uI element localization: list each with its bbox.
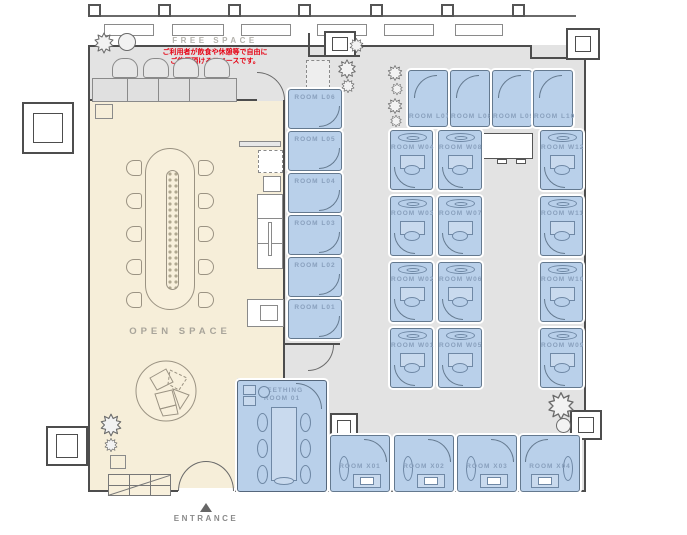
sofa-cushion (556, 334, 569, 338)
door-arc-icon (319, 316, 340, 337)
column-icon (228, 4, 241, 17)
sofa-cushion (406, 334, 419, 338)
column-icon (88, 4, 101, 17)
chair-icon (126, 160, 142, 176)
room-label: ROOM W05 (439, 342, 481, 349)
room-w11: ROOM W11 (540, 196, 583, 256)
stool-icon (173, 58, 199, 78)
chair-icon (198, 259, 214, 275)
counter-divider (257, 218, 283, 219)
plant-icon (389, 114, 403, 128)
window-pane (455, 24, 503, 36)
column-inner (575, 36, 591, 52)
room-w03: ROOM W03 (390, 196, 433, 256)
open-space-label: OPEN SPACE (120, 326, 240, 337)
room-l06: ROOM L06 (288, 89, 342, 129)
chair-icon (126, 292, 142, 308)
door-arc-icon (442, 365, 463, 386)
meeting-room-01: MEETHING ROOM 01 (237, 380, 327, 492)
monitor-icon (487, 477, 501, 485)
sofa-icon (548, 265, 577, 274)
room-l03: ROOM L03 (288, 215, 342, 255)
counter-divider (189, 78, 190, 102)
sofa-cushion (406, 268, 419, 272)
sofa-cushion (556, 136, 569, 140)
plant-icon (336, 58, 358, 80)
room-w07: ROOM W07 (438, 196, 482, 256)
entrance-arrow-icon (200, 503, 212, 512)
column-icon (370, 4, 383, 17)
column-inner (56, 434, 78, 458)
monitor-icon (424, 477, 438, 485)
sofa-icon (398, 133, 427, 142)
room-l05: ROOM L05 (288, 131, 342, 171)
chair-icon (126, 259, 142, 275)
cabinet (243, 385, 256, 395)
plant-icon (390, 82, 404, 96)
chair-icon (257, 413, 268, 432)
chair-icon (198, 226, 214, 242)
door-arc-icon (544, 365, 565, 386)
sink-handle (268, 222, 272, 256)
sofa-icon (398, 199, 427, 208)
room-label: ROOM W06 (439, 276, 481, 283)
planter-box (110, 455, 126, 469)
chair-icon (126, 226, 142, 242)
room-label: ROOM L08 (451, 113, 489, 120)
room-label: ROOM L07 (409, 113, 447, 120)
room-w05: ROOM W05 (438, 328, 482, 388)
appliance-dashed (258, 150, 283, 173)
room-label: ROOM W07 (439, 210, 481, 217)
window-pane (241, 24, 291, 36)
room-w04: ROOM W04 (390, 130, 433, 190)
room-label: ROOM L10 (534, 113, 572, 120)
alcove-tab (497, 159, 507, 164)
plant-pot-icon (556, 418, 571, 433)
door-arc-icon (498, 75, 521, 98)
sofa-icon (398, 331, 427, 340)
room-label: ROOM W10 (541, 276, 582, 283)
sofa-cushion (556, 202, 569, 206)
sofa-cushion (556, 268, 569, 272)
stool-icon (204, 58, 230, 78)
door-arc-icon (319, 232, 340, 253)
appliance (263, 176, 281, 192)
wall (308, 33, 310, 57)
room-label: ROOM W03 (391, 210, 432, 217)
room-l07: ROOM L07 (408, 70, 448, 127)
sofa-cushion (454, 136, 467, 140)
room-x03: ROOM X03 (457, 435, 517, 492)
door-arc-icon (319, 274, 340, 295)
door-arc-icon (491, 439, 514, 462)
appliance-dashed (306, 60, 330, 88)
monitor-icon (360, 477, 374, 485)
plant-icon (386, 64, 404, 82)
door-arc-icon (442, 299, 463, 320)
stool-icon (143, 58, 169, 78)
chair-icon (198, 160, 214, 176)
door-arc-icon (428, 439, 451, 462)
sofa-icon (446, 199, 475, 208)
sofa-cushion (454, 202, 467, 206)
room-x01: ROOM X01 (330, 435, 390, 492)
door-arc-icon (539, 75, 562, 98)
counter-divider (127, 78, 128, 102)
room-label: ROOM L06 (289, 94, 341, 101)
wall (88, 45, 532, 47)
room-w12: ROOM W12 (540, 130, 583, 190)
room-l08: ROOM L08 (450, 70, 490, 127)
free-space-label: FREE SPACE (150, 36, 280, 45)
column-inner (33, 113, 63, 143)
room-label: ROOM X02 (395, 463, 453, 470)
copier (260, 305, 278, 321)
room-label: ROOM W08 (439, 144, 481, 151)
table-planter (166, 170, 179, 290)
plant-icon (92, 31, 116, 55)
counter-divider (158, 78, 159, 102)
cabinet (243, 396, 256, 406)
door-arc-icon (394, 233, 415, 254)
sofa-icon (398, 265, 427, 274)
wall-stub (239, 141, 281, 147)
alcove (483, 133, 533, 159)
room-label: ROOM X04 (521, 463, 579, 470)
door-arc-icon (544, 167, 565, 188)
window-pane (172, 24, 224, 36)
stool-icon (112, 58, 138, 78)
plant-icon (98, 412, 124, 438)
plant-icon (118, 33, 136, 51)
door-arc-icon (442, 233, 463, 254)
counter (92, 78, 237, 102)
column-inner (578, 417, 594, 433)
chair-icon (300, 413, 311, 432)
room-label: ROOM X01 (331, 463, 389, 470)
alcove-tab (516, 159, 526, 164)
sofa-icon (548, 133, 577, 142)
room-label: ROOM W04 (391, 144, 432, 151)
sofa-cushion (406, 202, 419, 206)
plant-icon (348, 37, 365, 54)
plant-icon (103, 437, 119, 453)
door-arc-icon (456, 75, 479, 98)
room-label: ROOM L04 (289, 178, 341, 185)
sofa-cushion (406, 136, 419, 140)
column-icon (512, 4, 525, 17)
sofa-icon (446, 265, 475, 274)
room-label: ROOM L05 (289, 136, 341, 143)
room-label: ROOM W09 (541, 342, 582, 349)
sofa-icon (548, 199, 577, 208)
room-w06: ROOM W06 (438, 262, 482, 322)
sofa-cushion (454, 334, 467, 338)
column-icon (158, 4, 171, 17)
speakerphone-icon (274, 477, 294, 485)
door-arc-icon (442, 167, 463, 188)
room-label: ROOM L03 (289, 220, 341, 227)
door-arc-icon (394, 299, 415, 320)
room-l10: ROOM L10 (533, 70, 573, 127)
floor-plan: FREE SPACE ご利用者が飲食や休憩等で自由に ご使用頂けるスペースです。… (0, 0, 687, 535)
planter-box (95, 104, 113, 119)
chair-icon (126, 193, 142, 209)
window-pane (384, 24, 434, 36)
monitor-icon (538, 477, 552, 485)
room-w08: ROOM W08 (438, 130, 482, 190)
entrance-label: ENTRANCE (146, 514, 266, 523)
wall (283, 100, 285, 378)
room-x04: ROOM X04 (520, 435, 580, 492)
chair-icon (257, 465, 268, 484)
meeting-table (271, 407, 297, 481)
column-icon (298, 4, 311, 17)
plant-icon (386, 97, 404, 115)
lounge-seating (135, 356, 199, 428)
free-space-note-1: ご利用者が飲食や休憩等で自由に (145, 48, 285, 57)
wall (88, 45, 90, 492)
room-label: ROOM W02 (391, 276, 432, 283)
chair-icon (258, 386, 270, 398)
sofa-icon (446, 331, 475, 340)
room-w01: ROOM W01 (390, 328, 433, 388)
plant-icon (340, 78, 356, 94)
door-arc-icon (364, 439, 387, 462)
door-arc-icon (394, 365, 415, 386)
sofa-icon (446, 133, 475, 142)
room-l04: ROOM L04 (288, 173, 342, 213)
door-arc-icon (319, 190, 340, 211)
door-arc-icon (544, 233, 565, 254)
room-label: ROOM W11 (541, 210, 582, 217)
room-w10: ROOM W10 (540, 262, 583, 322)
room-l02: ROOM L02 (288, 257, 342, 297)
column-inner (332, 37, 348, 51)
room-label: ROOM L01 (289, 304, 341, 311)
column-icon (441, 4, 454, 17)
door-arc-icon (544, 299, 565, 320)
room-label: ROOM X03 (458, 463, 516, 470)
door-arc-icon (414, 75, 437, 98)
sofa-icon (548, 331, 577, 340)
room-l09: ROOM L09 (492, 70, 532, 127)
sofa-cushion (454, 268, 467, 272)
room-w02: ROOM W02 (390, 262, 433, 322)
room-l01: ROOM L01 (288, 299, 342, 339)
door-arc-icon (319, 148, 340, 169)
chair-icon (257, 439, 268, 458)
room-label: ROOM W01 (391, 342, 432, 349)
column-inner (337, 420, 351, 434)
chair-icon (300, 439, 311, 458)
door-arc-icon (394, 167, 415, 188)
chair-icon (198, 292, 214, 308)
room-w09: ROOM W09 (540, 328, 583, 388)
room-label: ROOM W12 (541, 144, 582, 151)
chair-icon (198, 193, 214, 209)
room-label: ROOM L09 (493, 113, 531, 120)
door-arc-icon (525, 439, 548, 462)
chair-icon (300, 465, 311, 484)
room-x02: ROOM X02 (394, 435, 454, 492)
room-label: ROOM L02 (289, 262, 341, 269)
door-arc-icon (319, 106, 340, 127)
